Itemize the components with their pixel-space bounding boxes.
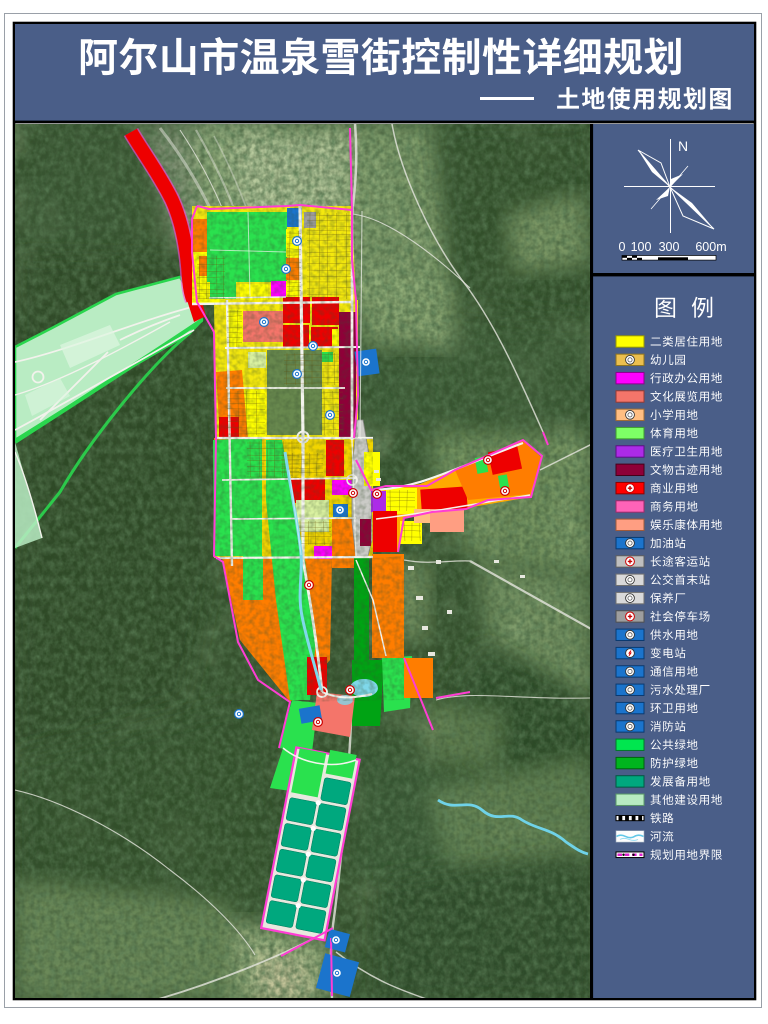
svg-text:100: 100: [631, 240, 652, 254]
svg-text:300: 300: [659, 240, 680, 254]
svg-text:0: 0: [619, 240, 626, 254]
svg-text:N: N: [678, 138, 688, 154]
svg-text:600m: 600m: [695, 240, 726, 254]
